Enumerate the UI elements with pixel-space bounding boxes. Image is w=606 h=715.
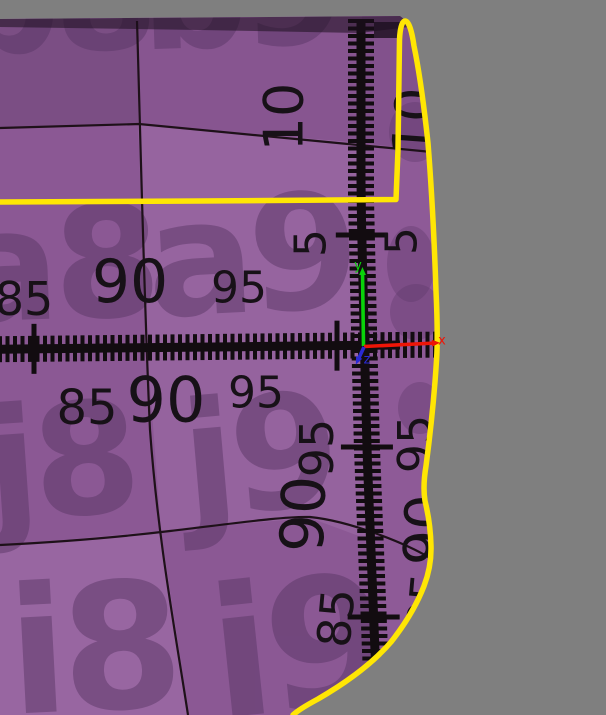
ruler-tick bbox=[348, 207, 374, 211]
ruler-tick bbox=[349, 222, 375, 226]
ruler-tick bbox=[349, 244, 375, 248]
ruler-tick bbox=[216, 334, 220, 360]
ruler-tick bbox=[355, 477, 381, 481]
ruler-tick bbox=[126, 335, 130, 361]
ruler-tick bbox=[348, 132, 374, 136]
ruler-tick bbox=[357, 522, 383, 526]
ruler-tick bbox=[171, 334, 175, 360]
ruler-tick bbox=[348, 139, 374, 143]
ruler-tick bbox=[357, 529, 383, 533]
ruler-tick bbox=[348, 42, 374, 46]
ruler-tick bbox=[348, 34, 374, 38]
ruler-tick bbox=[223, 334, 227, 360]
ruler-tick bbox=[6, 336, 10, 362]
ruler-tick bbox=[58, 336, 62, 362]
ruler-tick bbox=[306, 333, 310, 359]
ruler-tick bbox=[348, 109, 374, 113]
ruler-tick bbox=[313, 333, 317, 359]
ruler-tick bbox=[261, 333, 265, 359]
viewport-canvas[interactable]: b8b9a8a9j8j9i8i9859095551010859095959590… bbox=[0, 0, 606, 715]
uv-number: 95 bbox=[228, 368, 284, 419]
uv-number: 85 bbox=[0, 272, 53, 326]
ruler-tick bbox=[178, 334, 182, 360]
ruler-major-tick bbox=[335, 321, 340, 371]
uv-number: 95 bbox=[211, 263, 267, 314]
ruler-tick bbox=[353, 424, 379, 428]
ruler-tick bbox=[354, 454, 380, 458]
ruler-tick bbox=[362, 642, 388, 646]
ruler-tick bbox=[358, 544, 384, 548]
ruler-tick bbox=[348, 169, 374, 173]
axis-label-x: x bbox=[438, 334, 446, 349]
ruler-tick bbox=[343, 333, 347, 359]
ruler-tick bbox=[348, 72, 374, 76]
uv-number: 5 bbox=[377, 227, 428, 255]
ruler-major-tick bbox=[32, 324, 37, 374]
ruler-tick bbox=[246, 334, 250, 360]
ruler-tick bbox=[43, 336, 47, 362]
ruler-tick bbox=[88, 335, 92, 361]
ruler-tick bbox=[348, 162, 374, 166]
uv-number: 10 bbox=[253, 83, 316, 152]
ruler-tick bbox=[148, 335, 152, 361]
ruler-tick bbox=[328, 333, 332, 359]
ruler-tick bbox=[186, 334, 190, 360]
ruler-tick bbox=[201, 334, 205, 360]
ruler-tick bbox=[73, 335, 77, 361]
ruler-tick bbox=[348, 177, 374, 181]
ruler-tick bbox=[276, 333, 280, 359]
ruler-tick bbox=[283, 333, 287, 359]
mesh-top-edge-glyph-smudge bbox=[374, 22, 400, 38]
ruler-tick bbox=[356, 499, 382, 503]
uv-number: 90 bbox=[268, 475, 341, 554]
ruler-tick bbox=[348, 64, 374, 68]
ruler-tick bbox=[358, 537, 384, 541]
ruler-tick bbox=[348, 192, 374, 196]
ruler-tick bbox=[358, 559, 384, 563]
ruler-tick bbox=[13, 336, 17, 362]
ruler-tick bbox=[353, 417, 379, 421]
ruler-tick bbox=[348, 124, 374, 128]
ruler-tick bbox=[359, 574, 385, 578]
ruler-tick bbox=[356, 492, 382, 496]
ruler-tick bbox=[359, 582, 385, 586]
ruler-tick bbox=[66, 335, 70, 361]
ruler-tick bbox=[356, 507, 382, 511]
ruler-major-tick bbox=[341, 445, 393, 450]
uv-cell-label-i8: i8 bbox=[3, 544, 181, 715]
axis-label-z: z bbox=[364, 353, 371, 368]
ruler-tick bbox=[361, 627, 387, 631]
ruler-tick bbox=[321, 333, 325, 359]
ruler-tick bbox=[352, 379, 378, 383]
ruler-tick bbox=[118, 335, 122, 361]
ruler-tick bbox=[348, 184, 374, 188]
ruler-tick bbox=[348, 94, 374, 98]
ruler-tick bbox=[348, 154, 374, 158]
ruler-tick bbox=[298, 333, 302, 359]
ruler-tick bbox=[51, 336, 55, 362]
uv-number: 95 bbox=[290, 419, 344, 478]
ruler-tick bbox=[355, 469, 381, 473]
ruler-tick bbox=[354, 439, 380, 443]
ruler-tick bbox=[349, 229, 375, 233]
ruler-tick bbox=[81, 335, 85, 361]
ruler-tick bbox=[353, 402, 379, 406]
ruler-tick bbox=[348, 214, 374, 218]
ruler-tick bbox=[96, 335, 100, 361]
ruler-tick bbox=[361, 619, 387, 623]
ruler-tick bbox=[354, 432, 380, 436]
ruler-tick bbox=[349, 252, 375, 256]
ruler-tick bbox=[348, 79, 374, 83]
ruler-tick bbox=[352, 372, 378, 376]
ruler-tick bbox=[238, 334, 242, 360]
ruler-tick bbox=[253, 334, 257, 360]
axis-y[interactable] bbox=[363, 271, 364, 346]
ruler-tick bbox=[28, 336, 32, 362]
ruler-tick bbox=[348, 87, 374, 91]
ruler-tick bbox=[291, 333, 295, 359]
ruler-tick bbox=[208, 334, 212, 360]
ruler-tick bbox=[361, 634, 387, 638]
ruler-tick bbox=[0, 336, 2, 362]
ruler-tick bbox=[348, 49, 374, 53]
ruler-tick bbox=[358, 552, 384, 556]
ruler-tick bbox=[21, 336, 25, 362]
uv-number: 5 bbox=[286, 229, 337, 257]
ruler-tick bbox=[111, 335, 115, 361]
ruler-tick bbox=[141, 335, 145, 361]
ruler-tick bbox=[348, 147, 374, 151]
ruler-tick bbox=[355, 484, 381, 488]
ruler-tick bbox=[353, 394, 379, 398]
ruler-tick bbox=[193, 334, 197, 360]
ruler-tick bbox=[163, 334, 167, 360]
ruler-tick bbox=[268, 333, 272, 359]
uv-number: 90 bbox=[92, 247, 168, 317]
ruler-tick bbox=[156, 335, 160, 361]
3d-viewport[interactable]: b8b9a8a9j8j9i8i9859095551010859095959590… bbox=[0, 0, 606, 715]
ruler-tick bbox=[355, 462, 381, 466]
ruler-tick bbox=[103, 335, 107, 361]
uv-number: 85 bbox=[56, 380, 117, 436]
axis-label-y: y bbox=[354, 259, 362, 274]
ruler-tick bbox=[348, 102, 374, 106]
ruler-tick bbox=[231, 334, 235, 360]
ruler-tick bbox=[348, 57, 374, 61]
ruler-tick bbox=[357, 514, 383, 518]
ruler-tick bbox=[359, 567, 385, 571]
uv-number: 85 bbox=[307, 586, 366, 649]
ruler-tick bbox=[352, 387, 378, 391]
ruler-tick bbox=[353, 409, 379, 413]
uv-number: 90 bbox=[127, 364, 206, 437]
ruler-tick bbox=[133, 335, 137, 361]
ruler-tick bbox=[348, 117, 374, 121]
